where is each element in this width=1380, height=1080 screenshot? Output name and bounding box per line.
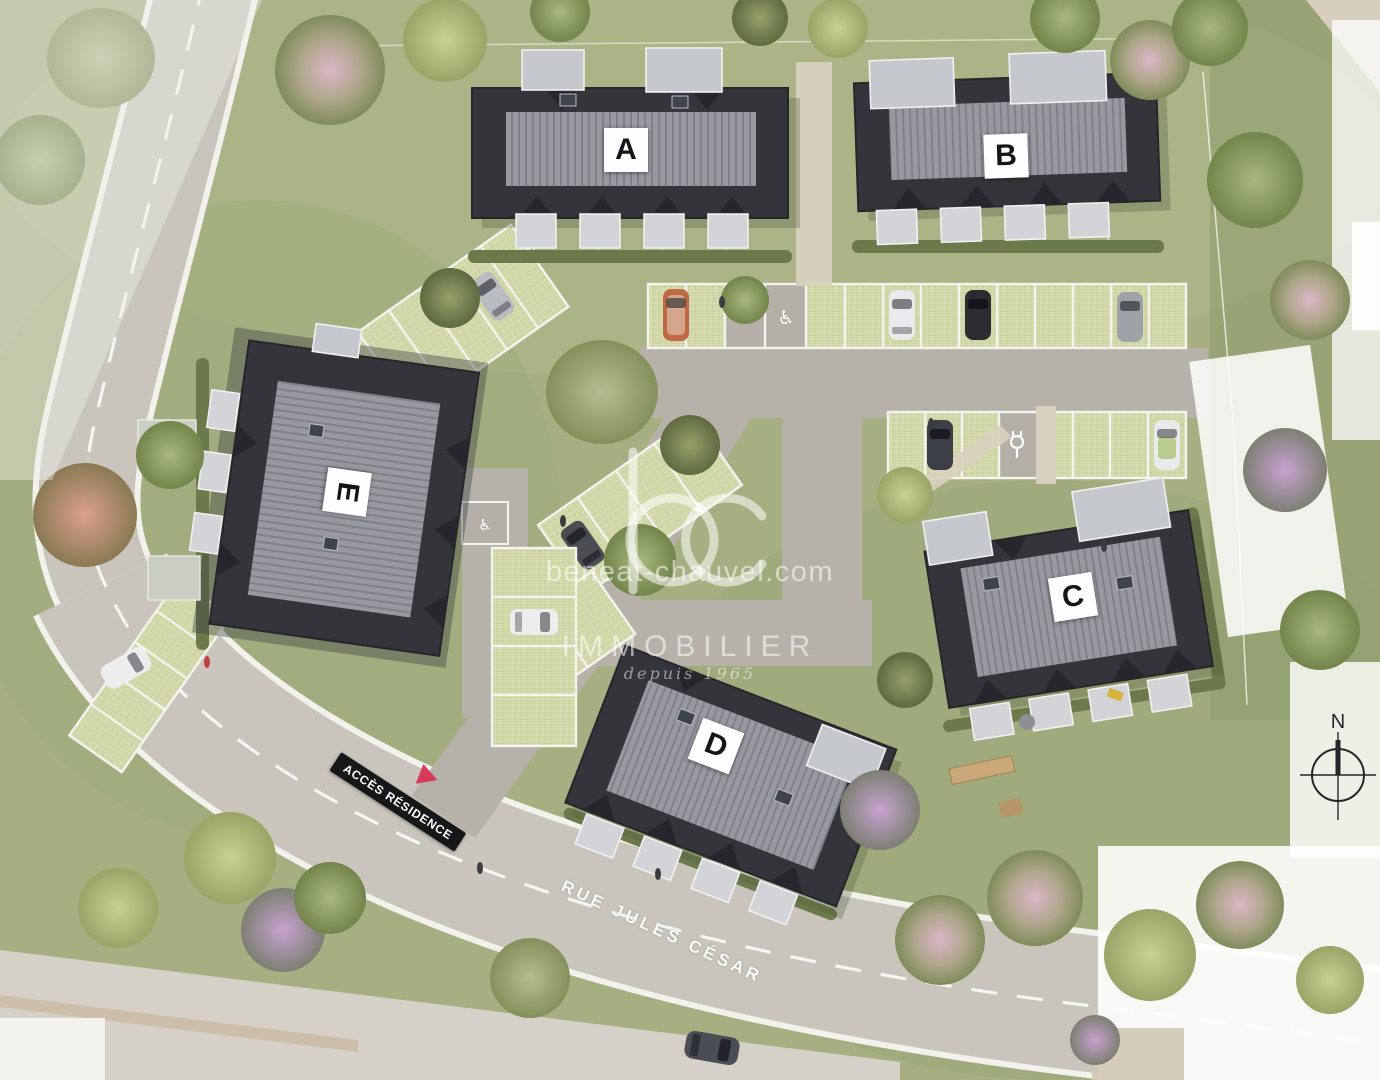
access-arrow-icon [413, 762, 438, 784]
building-label-c: C [1048, 572, 1098, 622]
building-label-b: B [983, 133, 1029, 179]
footpath [1036, 406, 1056, 484]
handicap-icon: ♿ [777, 307, 794, 329]
building-label-e: E [322, 467, 372, 517]
handicap-icon: ♿ [478, 516, 491, 534]
site-plan-map: ♿ ♿ ♿ [0, 0, 1380, 1080]
handicap-stall-e: ♿ [462, 502, 508, 544]
compass-north-label: N [1331, 711, 1345, 733]
building-label-a: A [604, 128, 648, 172]
parking-column-e [492, 548, 576, 746]
site-plan-render: ♿ ♿ ♿ [0, 0, 1380, 1080]
